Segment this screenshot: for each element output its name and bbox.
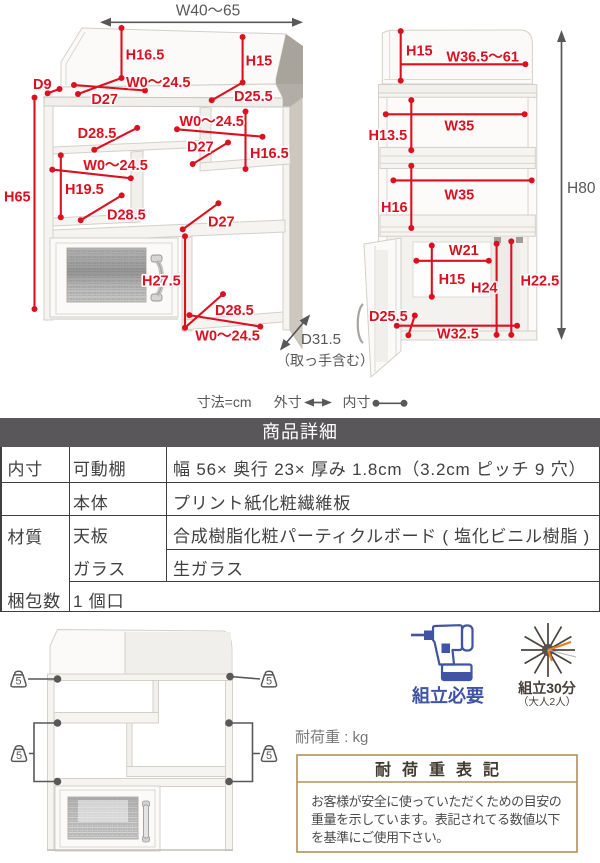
svg-text:H27.5: H27.5 [142, 274, 181, 290]
svg-text:W0〜24.5: W0〜24.5 [195, 329, 259, 345]
svg-text:W0〜24.5: W0〜24.5 [179, 114, 243, 130]
svg-text:外寸: 外寸 [274, 394, 302, 410]
svg-text:W32.5: W32.5 [437, 327, 479, 343]
svg-text:重量を示しています。表記されてる数値以下: 重量を示しています。表記されてる数値以下 [311, 812, 560, 827]
svg-text:D28.5: D28.5 [215, 303, 254, 319]
svg-text:D25.5: D25.5 [234, 89, 273, 105]
svg-text:H15: H15 [439, 272, 466, 288]
svg-text:H15: H15 [246, 54, 273, 70]
svg-text:D25.5: D25.5 [369, 309, 408, 325]
svg-text:H24: H24 [471, 281, 498, 297]
svg-text:D27: D27 [208, 215, 235, 231]
svg-text:耐荷重表記: 耐荷重表記 [375, 760, 510, 779]
svg-text:H22.5: H22.5 [521, 274, 560, 290]
svg-text:H15: H15 [406, 44, 433, 60]
svg-text:耐荷重 : kg: 耐荷重 : kg [295, 729, 368, 746]
svg-text:W35: W35 [444, 187, 474, 203]
svg-text:H16.5: H16.5 [126, 48, 165, 64]
svg-text:D28.5: D28.5 [78, 126, 117, 142]
svg-text:D27: D27 [91, 92, 118, 108]
svg-text:（大人2人）: （大人2人） [518, 695, 576, 708]
svg-text:W35: W35 [444, 119, 474, 135]
svg-text:W0〜24.5: W0〜24.5 [83, 158, 147, 174]
svg-text:H19.5: H19.5 [65, 182, 104, 198]
svg-text:H65: H65 [4, 190, 31, 206]
svg-text:D28.5: D28.5 [107, 208, 146, 224]
svg-text:D9: D9 [33, 77, 52, 93]
svg-text:H16.5: H16.5 [250, 146, 289, 162]
svg-text:5: 5 [15, 676, 21, 688]
svg-text:H13.5: H13.5 [369, 128, 408, 144]
svg-text:W40〜65: W40〜65 [176, 3, 241, 20]
svg-text:D27: D27 [187, 140, 214, 156]
svg-text:内寸: 内寸 [343, 394, 371, 410]
svg-text:W36.5〜61: W36.5〜61 [446, 50, 519, 66]
svg-text:を基準にご使用下さい。: を基準にご使用下さい。 [311, 830, 449, 845]
svg-text:W21: W21 [449, 243, 479, 259]
svg-text:組立必要: 組立必要 [411, 685, 484, 706]
svg-text:H80: H80 [567, 180, 596, 197]
svg-text:5: 5 [16, 750, 22, 762]
svg-text:H16: H16 [381, 200, 408, 216]
svg-text:（取っ手含む）: （取っ手含む） [276, 353, 374, 369]
svg-text:W0〜24.5: W0〜24.5 [126, 75, 190, 91]
svg-text:お客様が安全に使っていただくための目安の: お客様が安全に使っていただくための目安の [311, 794, 561, 809]
svg-text:5: 5 [266, 676, 272, 688]
svg-text:5: 5 [266, 750, 272, 762]
svg-text:寸法=cm: 寸法=cm [197, 394, 252, 410]
svg-text:D31.5: D31.5 [301, 331, 341, 348]
svg-text:組立30分: 組立30分 [517, 680, 577, 696]
